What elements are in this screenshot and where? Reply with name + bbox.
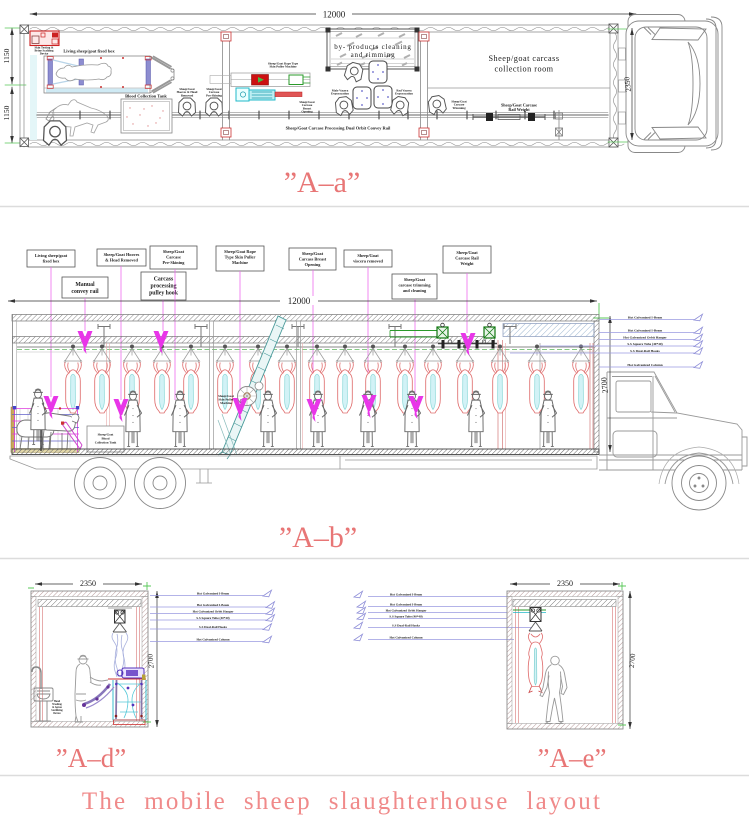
svg-text:Sheep/Goat: Sheep/Goat <box>404 277 426 282</box>
svg-text:by- products cleaning: by- products cleaning <box>334 43 411 51</box>
svg-text:S.S Square Tube (40*40): S.S Square Tube (40*40) <box>196 616 229 620</box>
svg-text:Machine: Machine <box>220 401 232 405</box>
svg-text:and cleaning: and cleaning <box>403 288 427 293</box>
svg-text:Sheep/Goat Hooves: Sheep/Goat Hooves <box>104 252 140 257</box>
svg-text:Sheep/Goat Carcase Processing: Sheep/Goat Carcase Processing Dual Orbit… <box>286 126 392 131</box>
svg-text:Hot Galvanized Orbit Hanger: Hot Galvanized Orbit Hanger <box>193 610 234 614</box>
svg-text:2350: 2350 <box>557 579 573 588</box>
svg-text:Carcass: Carcass <box>154 277 174 283</box>
svg-text:1150: 1150 <box>2 48 11 63</box>
svg-text:Device: Device <box>40 52 49 56</box>
svg-text:Evporacation: Evporacation <box>395 92 413 96</box>
svg-text:12000: 12000 <box>288 296 311 306</box>
svg-text:Pre-Skining: Pre-Skining <box>206 93 222 97</box>
svg-text:Carcase Rail: Carcase Rail <box>455 256 479 261</box>
svg-text:The mobile sheep slaughterhous: The mobile sheep slaughterhouse layout <box>82 788 602 815</box>
svg-text:convey rail: convey rail <box>71 289 99 295</box>
svg-text:Living sheep/goat: Living sheep/goat <box>35 253 68 258</box>
svg-text:Sheep/Goat: Sheep/Goat <box>302 251 324 256</box>
svg-text:”A–b”: ”A–b” <box>279 521 357 554</box>
svg-text:Collection Tank: Collection Tank <box>95 441 117 445</box>
svg-text:Type Skin Puller: Type Skin Puller <box>225 255 256 260</box>
svg-text:Blood Collection Tank: Blood Collection Tank <box>125 94 167 99</box>
svg-text:Hot Galvanized I-Beam: Hot Galvanized I-Beam <box>390 603 423 607</box>
svg-text:Trimming: Trimming <box>452 106 466 110</box>
svg-text:Opening: Opening <box>301 110 313 114</box>
svg-text:collection room: collection room <box>494 65 553 74</box>
svg-text:Hot Galvanized Column: Hot Galvanized Column <box>196 638 229 642</box>
svg-text:fixed box: fixed box <box>43 259 61 264</box>
svg-text:”A–a”: ”A–a” <box>284 166 361 199</box>
svg-text:Hot Galvanized Orbit Hanger: Hot Galvanized Orbit Hanger <box>386 609 427 613</box>
svg-text:Hot Galvanized I-Beam: Hot Galvanized I-Beam <box>197 603 230 607</box>
svg-text:Sheep/Goat: Sheep/Goat <box>357 253 379 258</box>
svg-text:Rail Weight: Rail Weight <box>508 107 530 112</box>
svg-text:Carcass Breast: Carcass Breast <box>299 257 327 262</box>
svg-text:Hot Galvanized I-Beam: Hot Galvanized I-Beam <box>628 329 662 333</box>
svg-text:and rimming: and rimming <box>351 51 396 59</box>
svg-text:Sheep/goat carcass: Sheep/goat carcass <box>488 54 559 63</box>
svg-text:Sheep/Goat: Sheep/Goat <box>456 250 478 255</box>
svg-text:Removed: Removed <box>181 93 194 97</box>
svg-text:Sheep/Goat: Sheep/Goat <box>163 249 185 254</box>
svg-text:carcase trimming: carcase trimming <box>398 283 431 288</box>
svg-text:Hot Galvanized Column: Hot Galvanized Column <box>627 363 662 367</box>
svg-text:Manual: Manual <box>75 282 95 288</box>
svg-text:Carcase: Carcase <box>166 255 181 260</box>
svg-text:Evporacation: Evporacation <box>331 92 349 96</box>
svg-text:”A–d”: ”A–d” <box>56 743 126 773</box>
svg-text:Living sheep/goat fixed box: Living sheep/goat fixed box <box>63 49 115 54</box>
svg-text:Skin Puller Machine: Skin Puller Machine <box>269 65 297 69</box>
svg-text:Opening: Opening <box>305 262 322 267</box>
svg-text:Hot Galvanized I-Beam: Hot Galvanized I-Beam <box>390 593 423 597</box>
svg-text:”A–e”: ”A–e” <box>538 743 607 773</box>
svg-text:S.S Dual-Rail Hooks: S.S Dual-Rail Hooks <box>199 625 228 629</box>
svg-text:Device: Device <box>53 712 61 715</box>
svg-text:1150: 1150 <box>2 105 11 120</box>
svg-text:viscera removed: viscera removed <box>353 259 383 264</box>
svg-text:12000: 12000 <box>323 10 346 20</box>
svg-text:2700: 2700 <box>146 653 155 668</box>
svg-text:2350: 2350 <box>80 579 96 588</box>
svg-text:Hot Galvanized Orbit Hanger: Hot Galvanized Orbit Hanger <box>623 336 667 340</box>
svg-text:Hot Galvanized Column: Hot Galvanized Column <box>389 636 422 640</box>
svg-text:S.S Square Tube (40*40): S.S Square Tube (40*40) <box>627 342 662 346</box>
svg-text:Hot Galvanized I-Beam: Hot Galvanized I-Beam <box>197 592 230 596</box>
svg-text:S.S Dual-Rail Hooks: S.S Dual-Rail Hooks <box>392 624 421 628</box>
svg-text:Sheep/Goat Rope: Sheep/Goat Rope <box>224 249 256 254</box>
svg-text:S.S Dual-Rail Hooks: S.S Dual-Rail Hooks <box>630 349 660 353</box>
svg-text:Weight: Weight <box>460 261 474 266</box>
svg-text:Hot Galvanized I-Beam: Hot Galvanized I-Beam <box>628 316 662 320</box>
svg-text:Machine: Machine <box>232 260 248 265</box>
svg-text:S.S Square Tube (40*40): S.S Square Tube (40*40) <box>389 615 422 619</box>
svg-text:pulley hook: pulley hook <box>149 291 179 297</box>
svg-text:Pre-Skining: Pre-Skining <box>163 260 186 265</box>
svg-text:2700: 2700 <box>599 377 610 394</box>
svg-text:2700: 2700 <box>628 653 638 669</box>
svg-text:2350: 2350 <box>622 76 633 92</box>
svg-text:processing: processing <box>151 284 177 290</box>
svg-text:& Head Removed: & Head Removed <box>105 258 138 263</box>
